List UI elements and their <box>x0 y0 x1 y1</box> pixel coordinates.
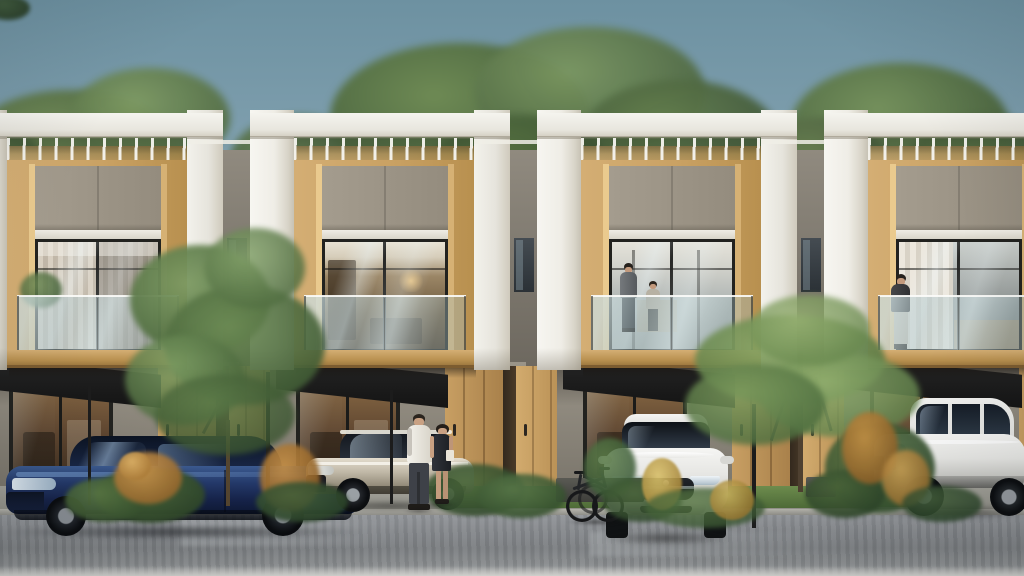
car-white-suv <box>874 398 1024 526</box>
facade-wood-box <box>7 146 187 358</box>
shrub <box>478 474 566 518</box>
grille <box>638 478 694 500</box>
side-window <box>158 444 270 472</box>
facade-wood-box <box>868 146 1024 358</box>
box-inner-edge <box>735 164 741 354</box>
pillar-foot-shade <box>474 348 510 370</box>
glass-glint <box>920 406 950 434</box>
balcony-rail-post <box>304 296 306 354</box>
shoes <box>408 504 430 510</box>
slab-shadow <box>583 368 763 378</box>
hair <box>896 274 906 283</box>
pergola-top-beam <box>537 113 797 137</box>
grass-tuft <box>645 488 765 528</box>
wheel <box>336 478 370 512</box>
shrub <box>95 467 205 523</box>
car-silver-sedan <box>306 430 482 514</box>
pillar-left <box>0 110 7 370</box>
pillar-foot-shade <box>250 348 294 370</box>
front-tree-foliage <box>685 365 825 445</box>
upper-window-mullion <box>957 242 960 349</box>
headlight <box>878 444 906 455</box>
ground-window-frame <box>9 374 113 484</box>
ground-window-reflection <box>874 378 916 480</box>
townhouse-unit <box>537 0 827 576</box>
side-mirror <box>598 456 612 464</box>
rocker-panel <box>14 510 352 520</box>
pillar-left <box>250 110 294 370</box>
pillar-left <box>537 110 581 370</box>
balcony-plant <box>20 272 64 310</box>
upper-window-frame <box>896 239 1022 352</box>
grass-strip <box>452 486 876 508</box>
badge <box>663 480 669 486</box>
upper-window-reflection <box>38 242 158 349</box>
ground-window-reflection <box>300 378 342 480</box>
upper-gray-panel <box>609 166 735 230</box>
window-band <box>916 404 1010 436</box>
bicycle-wheel <box>578 484 608 514</box>
bumper <box>626 504 706 514</box>
entry-door-slats <box>732 366 790 490</box>
foliage <box>20 272 62 308</box>
hair <box>624 263 633 271</box>
entry-door <box>732 366 790 490</box>
ground-window-glass <box>874 378 970 480</box>
vignette <box>0 0 1024 576</box>
flowering-plant <box>642 458 682 510</box>
slab-shadow <box>296 368 476 378</box>
inter-unit-recess-wall <box>223 150 253 368</box>
background-tree <box>905 115 1024 225</box>
car-roof <box>624 414 708 430</box>
bicycle-frame <box>583 474 608 488</box>
flowering-plant <box>882 450 930 506</box>
pergola-rafters <box>581 138 761 160</box>
background-tree <box>580 80 780 200</box>
balcony-glass-railing <box>17 296 179 354</box>
road-sheen <box>180 520 500 546</box>
balcony-slab <box>868 350 1024 367</box>
ground-floor-wall <box>844 362 1024 488</box>
inter-unit-recess-wall <box>510 150 540 368</box>
ground-window-glass <box>13 378 109 480</box>
trousers <box>622 298 635 328</box>
grass-strip <box>140 489 355 511</box>
balcony-rail-post <box>878 296 880 354</box>
flowering-plant <box>114 452 182 504</box>
ceiling-light <box>595 382 605 387</box>
upper-window-glass <box>899 242 1019 349</box>
roof-highlight <box>340 430 452 434</box>
background-tree <box>0 125 50 235</box>
balcony-rail-top <box>304 295 466 297</box>
ceiling-light <box>621 382 631 387</box>
pergola-top-beam <box>0 113 223 137</box>
front-tree-foliage <box>695 315 885 405</box>
tree-branch <box>202 394 225 434</box>
upper-gray-panel <box>896 166 1022 230</box>
road-texture <box>0 514 1024 576</box>
balcony-rail-post <box>958 298 959 354</box>
flowering-plant <box>842 412 898 484</box>
upper-window-mullion <box>383 242 386 349</box>
shoes <box>622 328 635 332</box>
tree-branch <box>770 383 791 441</box>
trousers <box>409 463 429 504</box>
shoes <box>435 499 449 504</box>
face <box>414 418 424 426</box>
grille-chrome <box>638 486 694 489</box>
box-inner-edge <box>316 164 322 354</box>
upper-gray-panel <box>35 166 161 230</box>
balcony-glass-railing <box>304 296 466 354</box>
car-body <box>306 458 474 494</box>
facade-wood-box <box>294 146 474 358</box>
upper-window-transom <box>38 268 158 270</box>
front-tree-foliage <box>750 295 870 365</box>
shrub <box>425 464 525 516</box>
white-shirt <box>407 425 431 463</box>
background-tree <box>750 118 890 218</box>
pergola-rafters <box>294 138 474 160</box>
box-inner-edge <box>890 164 896 354</box>
ceiling-light <box>47 382 57 387</box>
pillar-foot-shade <box>187 348 223 370</box>
balcony-rail-post <box>177 296 179 354</box>
pillar-foot-shade <box>537 348 581 370</box>
balcony-glass-railing <box>591 296 753 354</box>
ceiling-light <box>649 382 659 387</box>
shrub <box>805 470 885 518</box>
slab-lip <box>581 365 763 368</box>
upper-window-frame <box>322 239 448 352</box>
box-inner-edge <box>603 164 609 354</box>
shadow <box>403 508 435 514</box>
entry-door-slats <box>158 366 216 490</box>
interior-shelf <box>67 420 101 476</box>
balcony-person <box>645 281 661 335</box>
bicycle-seat <box>574 471 585 474</box>
balcony-rail-post <box>97 298 98 354</box>
ceiling-light <box>334 382 344 387</box>
interior-shelf <box>928 420 962 476</box>
upper-window-mullion <box>96 242 99 349</box>
white-beam-strip <box>322 230 448 239</box>
wheel <box>990 478 1024 516</box>
grass-strip <box>828 487 920 507</box>
front-tree-foliage <box>205 228 305 308</box>
road-bottom-light <box>0 566 1024 576</box>
balcony-slab <box>581 350 763 367</box>
white-beam-strip <box>35 230 161 239</box>
ceiling-light <box>21 382 31 387</box>
bicycle-handlebar <box>599 467 610 470</box>
balcony-rail-post <box>671 298 672 354</box>
balcony-rail-post <box>384 298 385 354</box>
slab-lip <box>7 365 189 368</box>
door-handle <box>740 424 743 436</box>
recess-window-glint <box>516 240 523 290</box>
balcony-rail-post <box>17 296 19 354</box>
front-tree-foliage <box>130 245 270 355</box>
ceiling-light <box>882 382 892 387</box>
interior-furniture <box>884 432 916 476</box>
window-pillar <box>948 404 952 436</box>
pillar-foot-shade <box>0 348 7 370</box>
face <box>625 267 632 273</box>
ground-floor-wall <box>557 362 813 488</box>
window-interior-detail <box>637 300 677 332</box>
carport-canopy <box>850 356 1022 408</box>
ground-shadow <box>304 500 480 512</box>
entry-door-neighbor-slats <box>516 366 566 490</box>
car-cabin <box>70 436 282 478</box>
window-interior-detail <box>397 270 425 292</box>
ground-shadow <box>598 530 734 546</box>
background-tree <box>790 63 1010 193</box>
bicycle-fork <box>600 470 607 488</box>
wheel <box>262 494 304 536</box>
pillar-right <box>187 110 223 370</box>
ground-window-mullion <box>346 378 349 480</box>
recess-window-glint <box>803 240 810 290</box>
ground-window-reflection <box>587 378 629 480</box>
carport-post <box>88 385 91 505</box>
window-interior-detail <box>98 242 158 349</box>
headlight <box>12 478 56 490</box>
box-top-shade <box>7 146 187 154</box>
gray-panel-shadow <box>35 224 161 230</box>
windshield-glint <box>628 426 664 448</box>
window-interior-detail <box>328 260 356 340</box>
balcony-person <box>619 263 639 335</box>
pillar-right <box>761 110 797 370</box>
balcony-rail-top <box>878 295 1024 297</box>
shrub <box>825 423 935 513</box>
gray-panel-shadow <box>609 224 735 230</box>
box-top-shade <box>294 146 474 154</box>
beam-shadow-line <box>824 136 1024 139</box>
upper-window-transom <box>612 268 732 270</box>
balcony-slab <box>294 350 476 367</box>
car-body <box>6 466 358 514</box>
interior-furniture <box>23 432 55 476</box>
bicycle-frame <box>572 477 603 491</box>
windshield <box>76 442 146 472</box>
windshield <box>350 434 402 458</box>
window-interior-detail <box>954 320 1019 349</box>
flowering-plant <box>710 480 754 520</box>
road <box>0 514 1024 576</box>
door-seam <box>426 464 428 492</box>
car-body <box>874 434 1024 488</box>
planter-box <box>806 477 836 497</box>
recess-window <box>227 238 247 292</box>
recess-window-glint <box>229 240 236 290</box>
shoulder-highlight <box>16 472 346 477</box>
wheel <box>904 476 944 516</box>
tree-trunk <box>226 420 230 506</box>
person-man-standing <box>406 414 432 514</box>
carport-canopy <box>563 356 735 408</box>
upper-window-reflection <box>899 242 1019 349</box>
upper-window-glass <box>612 242 732 349</box>
balcony-slab <box>7 350 189 367</box>
balcony-glass-railing <box>878 296 1024 354</box>
ground-shadow <box>566 518 626 526</box>
windshield <box>622 422 710 452</box>
ground-shadow <box>2 524 366 540</box>
interior-shelf <box>641 420 675 476</box>
leg <box>436 471 441 499</box>
front-tree-foliage <box>155 375 295 455</box>
pergola-rafters <box>868 138 1024 160</box>
ceiling-light <box>362 382 372 387</box>
slab-shadow <box>9 368 189 378</box>
ground-window-mullion <box>633 378 636 480</box>
upper-window-transom <box>899 268 1019 270</box>
face <box>438 428 447 435</box>
ground-window-frame <box>583 374 687 484</box>
entry-door-slats <box>445 366 503 490</box>
grille <box>306 475 326 492</box>
ground-floor-wall <box>0 362 239 488</box>
gray-panel-seam <box>958 166 960 230</box>
entry-door-neighbor <box>229 366 279 490</box>
entry-door-neighbor <box>803 366 853 490</box>
door-handle <box>166 424 169 436</box>
road-sheen <box>590 532 950 556</box>
box-top-shade <box>581 146 761 154</box>
hair <box>649 281 657 288</box>
door-recess-seam <box>216 366 229 490</box>
pillar-foot-shade <box>761 348 797 370</box>
box-inner-edge <box>29 164 35 354</box>
background-tree <box>330 43 590 193</box>
upper-window-frame <box>609 239 735 352</box>
person-woman-standing <box>430 424 454 510</box>
tree-branch <box>814 377 832 432</box>
car-body <box>604 448 728 514</box>
shoulder-highlight <box>880 440 1020 444</box>
entry-door-slats <box>1019 366 1024 490</box>
jacket <box>891 284 910 312</box>
window-interior-detail <box>38 242 158 256</box>
arm <box>449 436 453 458</box>
top <box>646 289 660 309</box>
pillar-left <box>824 110 868 370</box>
white-beam-strip <box>896 230 1022 239</box>
carport-inner-shadow <box>270 362 450 406</box>
carport-inner-shadow <box>844 362 1024 406</box>
door-recess-seam <box>790 366 803 490</box>
rocker-panel <box>314 486 466 494</box>
driveway-apron <box>0 486 1024 516</box>
interior-furniture <box>310 432 342 476</box>
carport-inner-shadow <box>557 362 737 406</box>
ground-window-glass <box>300 378 396 480</box>
carport-post <box>390 390 393 504</box>
entry-door-neighbor <box>516 366 566 490</box>
dark-dress <box>432 434 451 471</box>
upper-window-glass <box>38 242 158 349</box>
ground-shadow <box>878 504 1024 520</box>
trousers <box>894 312 908 344</box>
carport-post <box>266 372 270 504</box>
wheel <box>606 512 628 538</box>
bicycles <box>566 434 626 526</box>
ground-window-reflection <box>13 378 55 480</box>
entry-door <box>1019 366 1024 490</box>
door-handle <box>453 424 456 436</box>
window-interior-detail <box>632 250 635 349</box>
entry-door-neighbor-slats <box>229 366 279 490</box>
ground-window-mullion <box>59 378 62 480</box>
ceiling-light <box>75 382 85 387</box>
car-cabin <box>340 430 452 462</box>
shoes <box>894 344 907 349</box>
kidney-grille <box>886 456 896 470</box>
shrub <box>902 486 982 522</box>
upper-window-reflection <box>325 242 445 349</box>
recess-window <box>801 238 821 292</box>
box-inner-edge <box>448 164 454 354</box>
wheel <box>704 512 726 538</box>
interior-shelf <box>354 420 388 476</box>
headlight <box>308 466 334 475</box>
gray-panel-seam <box>671 166 673 230</box>
window-interior-detail <box>370 318 422 344</box>
pillar-foot-shade <box>824 348 868 370</box>
arm-shade <box>407 428 412 456</box>
inter-unit-recess-wall <box>797 150 827 368</box>
entry-door <box>445 366 503 490</box>
shrub <box>602 478 682 522</box>
window-interior-detail <box>899 242 953 349</box>
pillar-right <box>474 110 510 370</box>
balcony-rail-top <box>591 295 753 297</box>
balcony-rail-post <box>751 296 753 354</box>
carport-inner-shadow <box>0 362 163 406</box>
front-bumper <box>6 492 44 512</box>
bicycle-seatpost <box>577 474 583 490</box>
slab-shadow <box>870 368 1024 378</box>
door-seam <box>224 470 226 512</box>
leg <box>443 471 448 499</box>
tree-trunk <box>798 352 803 492</box>
shrub <box>256 482 348 522</box>
front-tree-foliage <box>760 353 920 437</box>
bicycle-wheel <box>566 490 598 522</box>
flowering-plant <box>119 452 151 480</box>
carport-canopy <box>276 356 448 408</box>
shrub <box>65 478 145 522</box>
gray-panel-shadow <box>896 224 1022 230</box>
pergola-top-beam <box>824 113 1024 137</box>
face <box>650 284 656 289</box>
held-item <box>446 450 454 461</box>
door-handle <box>811 424 814 436</box>
arm <box>430 436 434 458</box>
window-pillar <box>980 404 984 434</box>
beam-shadow-line <box>250 136 510 139</box>
upper-window-glass <box>325 242 445 349</box>
hood-highlight <box>618 452 714 458</box>
potted-plant <box>584 438 636 498</box>
eave-line <box>761 140 827 144</box>
eave-line <box>474 140 540 144</box>
